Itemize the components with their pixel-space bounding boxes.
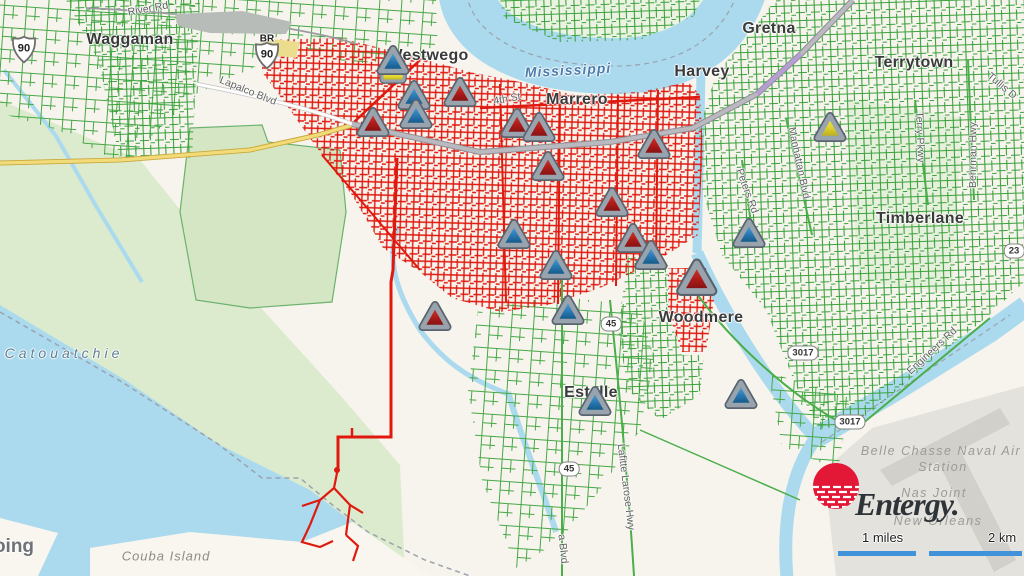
outage-marker-blue[interactable]: [374, 43, 412, 77]
outage-marker-blue[interactable]: [397, 97, 435, 131]
entergy-logo-text: Entergy.: [855, 486, 959, 523]
scale-miles-label: 1 miles: [862, 530, 903, 545]
outage-marker-red[interactable]: [441, 75, 479, 109]
outage-marker-red[interactable]: [529, 149, 567, 183]
outage-marker-blue[interactable]: [632, 238, 670, 272]
scale-km-bar: [929, 551, 1022, 556]
outage-marker-red[interactable]: [593, 185, 631, 219]
outage-marker-red[interactable]: [635, 127, 673, 161]
outage-map[interactable]: WaggamanWestwegoMarreroHarveyGretnaTerry…: [0, 0, 1024, 576]
outage-marker-blue[interactable]: [495, 217, 533, 251]
outage-marker-blue[interactable]: [730, 216, 768, 250]
outage-marker-red[interactable]: [416, 299, 454, 333]
outage-marker-blue[interactable]: [549, 293, 587, 327]
outage-marker-blue[interactable]: [722, 377, 760, 411]
scale-km-label: 2 km: [988, 530, 1016, 545]
outage-marker-yellow[interactable]: [811, 110, 849, 144]
outage-marker-blue[interactable]: [576, 384, 614, 418]
entergy-logo-icon: [811, 461, 861, 511]
outage-marker-red[interactable]: [673, 256, 721, 299]
outage-marker-red[interactable]: [520, 110, 558, 144]
scale-miles-bar: [838, 551, 916, 556]
outage-marker-red[interactable]: [354, 105, 392, 139]
outage-marker-blue[interactable]: [537, 248, 575, 282]
